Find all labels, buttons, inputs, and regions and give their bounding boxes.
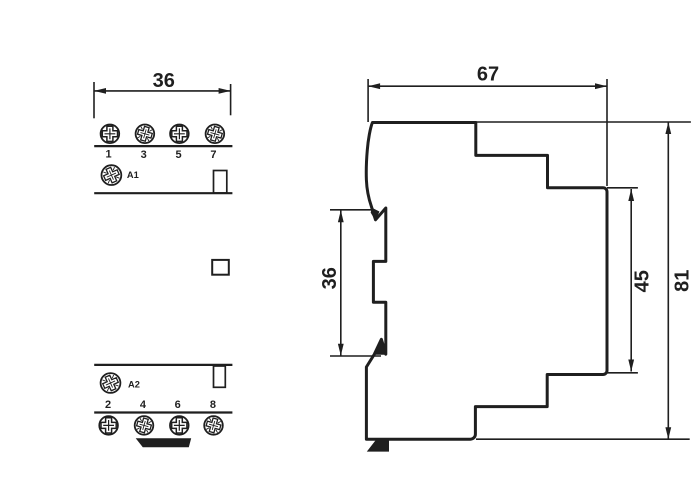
svg-text:36: 36	[153, 70, 175, 92]
svg-text:8: 8	[210, 399, 216, 411]
svg-text:36: 36	[319, 267, 341, 289]
svg-text:A1: A1	[127, 170, 139, 180]
svg-text:4: 4	[140, 399, 147, 411]
svg-text:5: 5	[176, 149, 182, 161]
svg-text:1: 1	[105, 149, 111, 161]
svg-text:45: 45	[632, 270, 654, 292]
svg-text:A2: A2	[128, 380, 140, 390]
svg-text:67: 67	[477, 64, 499, 86]
svg-text:2: 2	[105, 399, 111, 411]
svg-text:81: 81	[672, 270, 694, 292]
svg-text:6: 6	[175, 399, 181, 411]
svg-text:7: 7	[210, 149, 216, 161]
svg-text:3: 3	[141, 149, 147, 161]
